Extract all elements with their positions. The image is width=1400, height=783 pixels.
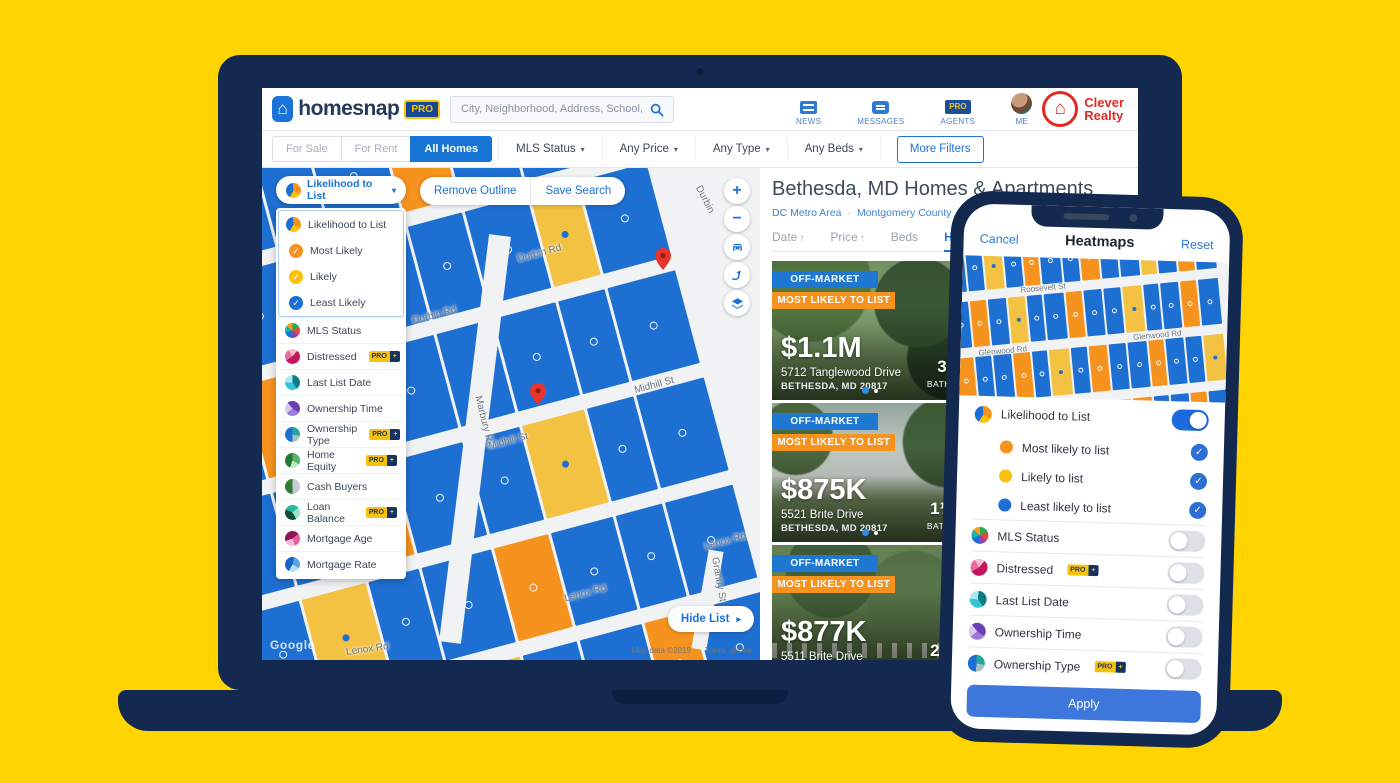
menu-option-label: Most Likely <box>310 245 363 257</box>
parcel-marker <box>1092 310 1097 315</box>
pro-badge-text: PRO <box>369 351 390 362</box>
nav-label: MESSAGES <box>857 117 904 126</box>
parcel-marker <box>996 319 1001 324</box>
parcel-marker <box>1097 366 1102 371</box>
parcel-marker <box>401 617 411 627</box>
toggle-knob <box>1170 532 1187 549</box>
menu-item-ownership-time[interactable]: Ownership Time <box>278 395 404 421</box>
parcel-marker <box>1048 258 1053 263</box>
segment-all-homes[interactable]: All Homes <box>410 136 492 162</box>
phone-map-parcel[interactable] <box>1013 352 1034 399</box>
news-icon <box>800 101 817 114</box>
setting-label: MLS Status <box>997 529 1059 545</box>
phone-map-parcel[interactable] <box>1078 255 1100 280</box>
parcel-marker <box>528 583 538 593</box>
dropdown-label: MLS Status <box>516 143 575 155</box>
phone-map-parcel[interactable] <box>1002 255 1023 288</box>
parcel-marker <box>435 493 445 503</box>
checked-icon[interactable]: ✓ <box>1189 502 1206 519</box>
parcel-marker <box>532 352 542 362</box>
ownership-type-toggle[interactable] <box>1164 658 1202 680</box>
phone-page-title: Heatmaps <box>1065 233 1135 251</box>
dropdown-any-price[interactable]: Any Price▾ <box>603 137 696 161</box>
parcel-marker <box>406 386 416 396</box>
parcel-marker <box>649 321 659 331</box>
parcel-marker <box>1213 355 1217 359</box>
nav-messages[interactable]: MESSAGES <box>857 101 904 126</box>
parcel-marker <box>1136 362 1141 367</box>
phone-map-parcel[interactable] <box>1148 339 1167 386</box>
search-icon[interactable] <box>649 102 665 118</box>
map-toolbar: Remove Outline Save Search <box>420 177 625 205</box>
photo-pagination <box>862 387 878 394</box>
parcel-marker <box>1207 299 1212 304</box>
photo-pagination <box>862 529 878 536</box>
spacer <box>1135 668 1156 669</box>
chevron-down-icon: ▾ <box>392 186 396 195</box>
likelihood-pie-icon <box>975 405 992 422</box>
pro-badge-plus: + <box>1115 662 1125 673</box>
parcel-marker <box>1078 367 1083 372</box>
spacer <box>1092 478 1181 480</box>
spacer <box>1068 538 1159 541</box>
nav-label: NEWS <box>796 117 821 126</box>
ownership-time-pie-icon <box>285 401 300 416</box>
pro-plus-badge: PRO+ <box>366 507 397 518</box>
least-likely-to-list-dot-icon <box>998 498 1011 511</box>
spacer <box>1078 602 1158 604</box>
mls-status-pie-icon <box>285 323 300 338</box>
cash-buyers-pie-icon <box>285 479 300 494</box>
phone-map-parcel[interactable] <box>970 300 990 347</box>
spacer <box>1107 571 1158 572</box>
menu-item-label: Cash Buyers <box>307 481 367 493</box>
home-equity-pie-icon <box>285 453 300 468</box>
more-filters-button[interactable]: More Filters <box>897 136 984 163</box>
mls-status-toggle[interactable] <box>1168 530 1206 552</box>
menu-item-ownership-type[interactable]: Ownership TypePRO+ <box>278 421 404 447</box>
phone-map-parcel[interactable] <box>1038 255 1062 284</box>
most-likely-banner: MOST LIKELY TO LIST <box>772 576 895 593</box>
ownership-type-pie-icon <box>285 427 300 442</box>
menu-item-label: Ownership Type <box>307 423 357 447</box>
phone-notch <box>1031 205 1164 230</box>
parcel-marker <box>1155 360 1160 365</box>
pagination-dot-active[interactable] <box>862 529 869 536</box>
homesnap-house-icon: ⌂ <box>272 96 293 122</box>
pro-badge-plus: + <box>390 429 400 440</box>
zoom-out-icon[interactable]: − <box>724 206 750 232</box>
cancel-button[interactable]: Cancel <box>980 232 1019 247</box>
phone-map-parcel[interactable] <box>1103 287 1124 334</box>
phone-speaker <box>1063 213 1109 220</box>
parcel-marker <box>1010 261 1015 266</box>
parcel-marker <box>677 428 687 438</box>
parcel-marker <box>1187 301 1192 306</box>
map[interactable]: Durbin RdDurbin RdDurbinMarbury RdMidhil… <box>262 168 760 660</box>
phone-map-parcel[interactable] <box>1165 337 1187 384</box>
phone-map-parcel[interactable] <box>1044 293 1068 341</box>
listing-card[interactable]: OFF-MARKETMOST LIKELY TO LIST$875K5521 B… <box>772 403 968 542</box>
parcel-marker <box>618 444 628 454</box>
pro-badge-plus: + <box>387 455 397 466</box>
parcel-marker <box>983 377 988 382</box>
check-icon: ✓ <box>289 270 303 284</box>
pro-plus-badge: PRO+ <box>366 455 397 466</box>
parcel-marker <box>675 658 685 660</box>
setting-option-label: Least likely to list <box>1020 498 1111 515</box>
segment-for-sale[interactable]: For Sale <box>272 136 342 162</box>
toggle-knob <box>1167 660 1184 677</box>
parcel-marker <box>1001 375 1006 380</box>
mortgage-rate-pie-icon <box>285 557 300 572</box>
sort-arrow-icon: ↑ <box>799 233 804 244</box>
setting-label: Distressed <box>996 561 1053 577</box>
phone-map-parcel[interactable] <box>1083 289 1105 336</box>
parcel-marker <box>1053 314 1058 319</box>
layers-icon[interactable] <box>724 290 750 316</box>
terms-of-use-link[interactable]: Terms of Use <box>705 646 752 655</box>
remove-outline-button[interactable]: Remove Outline <box>420 177 530 205</box>
parcel-marker <box>342 634 351 643</box>
pro-badge-plus: + <box>390 351 400 362</box>
laptop-base-notch <box>612 690 788 704</box>
pro-badge-text: PRO <box>366 455 387 466</box>
pro-badge-plus: + <box>1088 565 1098 576</box>
most-likely-to-list-dot-icon <box>1000 440 1013 453</box>
homesnap-pro-badge: PRO <box>404 100 440 119</box>
pro-badge-text: PRO <box>366 507 387 518</box>
most-likely-banner: MOST LIKELY TO LIST <box>772 434 895 451</box>
nav-agents[interactable]: PROAGENTS <box>941 100 976 126</box>
save-search-button[interactable]: Save Search <box>530 177 625 205</box>
listing-address: 5712 Tanglewood Drive <box>781 367 901 379</box>
likelihood-pie-icon <box>286 217 301 232</box>
listing-price: $875K <box>781 474 866 507</box>
phone-map-parcel[interactable] <box>1180 280 1200 327</box>
dropdown-mls-status[interactable]: MLS Status▾ <box>498 137 602 161</box>
map-data-label: Map data ©2019 <box>632 646 691 655</box>
ownership-time-pie-icon <box>969 623 986 640</box>
reset-button[interactable]: Reset <box>1181 237 1214 252</box>
nav-me[interactable]: ME <box>1011 93 1032 126</box>
setting-label: Ownership Time <box>995 625 1082 641</box>
chevron-down-icon: ▾ <box>674 145 678 154</box>
search-bar[interactable] <box>450 96 674 123</box>
distressed-pie-icon <box>285 349 300 364</box>
pagination-dot-active[interactable] <box>862 387 869 394</box>
parcel-marker <box>1193 357 1198 362</box>
phone-map-parcel[interactable] <box>1127 341 1150 389</box>
likelihood-pie-icon <box>286 183 301 198</box>
listing-price: $1.1M <box>781 332 862 365</box>
off-market-banner: OFF-MARKET <box>772 413 878 430</box>
parcel-marker <box>561 460 570 469</box>
app-header: ⌂ homesnap PRO NEWSMESSAGESPROAGENTSME ⌂… <box>262 88 1138 130</box>
map-pin[interactable] <box>655 248 671 270</box>
menu-item-mls-status[interactable]: MLS Status <box>278 317 404 343</box>
menu-item-home-equity[interactable]: Home EquityPRO+ <box>278 447 404 473</box>
setting-label: Ownership Type <box>994 657 1081 673</box>
google-watermark: Google <box>270 638 315 652</box>
parcel-marker <box>589 566 599 576</box>
menu-item-cash-buyers[interactable]: Cash Buyers <box>278 473 404 499</box>
menu-item-likelihood-to-list[interactable]: Likelihood to List <box>279 211 403 238</box>
laptop-camera-dot <box>697 68 704 75</box>
sort-arrow-icon: ↑ <box>860 233 865 244</box>
apply-button[interactable]: Apply <box>966 685 1201 724</box>
menu-item-loan-balance[interactable]: Loan BalancePRO+ <box>278 499 404 525</box>
menu-option-likely[interactable]: ✓Likely <box>279 264 403 290</box>
parcel-marker <box>972 265 977 270</box>
dropdown-any-type[interactable]: Any Type▾ <box>696 137 788 161</box>
parcel-marker <box>1073 312 1078 317</box>
selected-heatmap-group: Likelihood to List ✓Most Likely✓Likely✓L… <box>278 210 404 317</box>
menu-option-least-likely[interactable]: ✓Least Likely <box>279 290 403 316</box>
phone-map-parcel[interactable] <box>965 255 985 291</box>
menu-option-most-likely[interactable]: ✓Most Likely <box>279 238 403 264</box>
mls-status-pie-icon <box>971 527 988 544</box>
parcel-marker <box>1168 303 1173 308</box>
phone-map-parcel[interactable] <box>1060 255 1080 282</box>
last-list-date-toggle[interactable] <box>1166 594 1204 616</box>
phone-map-parcel[interactable] <box>1065 291 1085 338</box>
parcel-marker <box>500 476 510 486</box>
nav-news[interactable]: NEWS <box>796 101 821 126</box>
pro-plus-badge: PRO+ <box>1067 564 1099 576</box>
parcel-marker <box>442 261 452 271</box>
menu-option-label: Least Likely <box>310 297 365 309</box>
phone-map-parcel[interactable] <box>1208 389 1229 402</box>
map-controls: +− <box>724 178 750 316</box>
listing-address: 5521 Brite Drive <box>781 509 863 521</box>
listing-card[interactable]: OFF-MARKETMOST LIKELY TO LIST$1.1M5712 T… <box>772 261 968 400</box>
phone-map-parcel[interactable] <box>1032 350 1051 397</box>
parcel-marker <box>1116 364 1121 369</box>
listing-type-segments: For SaleFor RentAll Homes <box>272 136 492 162</box>
filter-bar: For SaleFor RentAll Homes MLS Status▾Any… <box>262 130 1138 168</box>
toggle-knob <box>1168 596 1185 613</box>
homesnap-wordmark: homesnap <box>298 97 399 121</box>
heatmap-menu-panel: Likelihood to List ✓Most Likely✓Likely✓L… <box>276 208 406 579</box>
parcel-marker <box>1111 308 1116 313</box>
tab-beds[interactable]: Beds <box>891 230 918 244</box>
breadcrumb-link[interactable]: Montgomery County <box>857 207 952 219</box>
distressed-toggle[interactable] <box>1167 562 1205 584</box>
phone-map-parcel[interactable] <box>1049 348 1073 396</box>
last-list-date-pie-icon <box>969 591 986 608</box>
commute-icon[interactable] <box>724 234 750 260</box>
dropdown-any-beds[interactable]: Any Beds▾ <box>788 137 881 161</box>
setting-ownership-type: Ownership TypePRO+ <box>967 647 1202 686</box>
segment-for-rent[interactable]: For Rent <box>341 136 412 162</box>
draw-icon[interactable] <box>724 262 750 288</box>
likelihood-toggle[interactable] <box>1171 409 1209 431</box>
check-icon: ✓ <box>289 244 303 258</box>
toggle-knob <box>1189 411 1206 428</box>
chevron-down-icon: ▾ <box>581 145 585 154</box>
map-attribution: Map data ©2019 Terms of Use <box>632 646 752 655</box>
pro-badge-plus: + <box>387 507 397 518</box>
toggle-knob <box>1169 564 1186 581</box>
menu-item-label: Mortgage Rate <box>307 559 376 571</box>
parcel-marker <box>1016 318 1020 322</box>
parcel-marker <box>959 323 963 328</box>
setting-option-label: Most likely to list <box>1022 440 1110 456</box>
zoom-in-icon[interactable]: + <box>724 178 750 204</box>
parcel-marker <box>1150 304 1155 309</box>
off-market-banner: OFF-MARKET <box>772 271 878 288</box>
spacer <box>1090 634 1156 636</box>
tab-date[interactable]: Date↑ <box>772 230 804 244</box>
parcel-marker <box>991 264 995 268</box>
menu-item-label: Loan Balance <box>307 501 354 525</box>
most-likely-banner: MOST LIKELY TO LIST <box>772 292 895 309</box>
spacer <box>1120 508 1180 510</box>
parcel-marker <box>1021 373 1026 378</box>
phone-map-parcel[interactable] <box>1198 278 1222 326</box>
phone-camera <box>1129 214 1137 222</box>
pro-badge-text: PRO <box>1094 661 1115 673</box>
pro-plus-badge: PRO+ <box>1094 661 1126 673</box>
phone-map-parcel[interactable] <box>993 354 1015 401</box>
distressed-pie-icon <box>970 559 987 576</box>
parcel-marker <box>1034 315 1039 320</box>
setting-label: Last List Date <box>995 593 1069 609</box>
pro-agents-icon: PRO <box>945 100 971 114</box>
phone-map-parcel[interactable] <box>975 356 995 403</box>
pro-plus-badge: PRO+ <box>369 351 400 362</box>
dropdown-label: Any Beds <box>805 143 854 155</box>
pro-badge-text: PRO <box>1067 564 1088 576</box>
brokerage-logo: ⌂ Clever Realty <box>1042 91 1124 127</box>
hide-list-button[interactable]: Hide List ▸ <box>668 606 754 632</box>
phone-map-parcel[interactable] <box>1122 285 1145 333</box>
parcel-marker <box>1132 307 1136 311</box>
listing-price: $877K <box>781 616 866 649</box>
parcel-marker <box>977 321 982 326</box>
tab-price[interactable]: Price↑ <box>830 230 864 244</box>
homesnap-logo[interactable]: ⌂ homesnap PRO <box>272 96 440 122</box>
phone-map-parcel[interactable] <box>1160 282 1182 329</box>
check-icon: ✓ <box>289 296 303 310</box>
phone-map-parcel[interactable] <box>1027 295 1046 342</box>
phone-map-parcel[interactable] <box>1185 336 1205 383</box>
menu-item-label: Ownership Time <box>307 403 383 415</box>
pro-badge-text: PRO <box>369 429 390 440</box>
dropdown-label: Any Type <box>713 143 761 155</box>
toggle-knob <box>1167 628 1184 645</box>
pro-plus-badge: PRO+ <box>369 429 400 440</box>
setting-option-label: Likely to list <box>1021 469 1083 485</box>
menu-item-label: Distressed <box>307 351 357 363</box>
header-nav: NEWSMESSAGESPROAGENTSME <box>796 93 1032 126</box>
clever-realty-house-icon: ⌂ <box>1042 91 1078 127</box>
parcel-marker <box>1028 260 1033 265</box>
menu-item-mortgage-rate[interactable]: Mortgage Rate <box>278 551 404 577</box>
menu-item-distressed[interactable]: DistressedPRO+ <box>278 343 404 369</box>
chevron-down-icon: ▾ <box>766 145 770 154</box>
parcel-marker <box>1174 358 1179 363</box>
phone-map-parcel[interactable] <box>1203 334 1227 382</box>
menu-item-label: Last List Date <box>307 377 371 389</box>
menu-item-last-list-date[interactable]: Last List Date <box>278 369 404 395</box>
phone-map-parcel[interactable] <box>1098 255 1119 279</box>
phone-map-parcel[interactable] <box>1021 255 1040 286</box>
spacer <box>1118 450 1182 452</box>
phone-map-parcel[interactable] <box>983 255 1005 289</box>
parcel-marker <box>589 337 599 347</box>
menu-item-mortgage-age[interactable]: Mortgage Age <box>278 525 404 551</box>
off-market-banner: OFF-MARKET <box>772 555 878 572</box>
listing-address: 5511 Brite Drive <box>781 651 863 660</box>
parcel-marker <box>262 311 265 321</box>
breadcrumb-link[interactable]: DC Metro Area <box>772 207 841 219</box>
ownership-time-toggle[interactable] <box>1165 626 1203 648</box>
pagination-dot[interactable] <box>874 531 878 535</box>
phone-map-parcel[interactable] <box>1143 284 1162 331</box>
heatmap-menu-button[interactable]: Likelihood to List ▾ <box>276 176 406 204</box>
menu-option-label: Likely <box>310 271 337 283</box>
heatmap-menu: Likelihood to List ▾ Likelihood to List … <box>276 176 406 579</box>
menu-item-label: Home Equity <box>307 449 354 473</box>
nav-label: AGENTS <box>941 117 976 126</box>
dropdown-label: Any Price <box>620 143 669 155</box>
phone-map-parcel[interactable] <box>1089 345 1111 392</box>
search-input[interactable] <box>451 103 673 115</box>
phone-map-parcel[interactable] <box>988 298 1010 345</box>
parcel-marker <box>1039 371 1044 376</box>
parcel-marker <box>963 378 968 383</box>
marketing-canvas: ⌂ homesnap PRO NEWSMESSAGESPROAGENTSME ⌂… <box>0 0 1400 783</box>
phone-map-parcel[interactable] <box>1109 343 1130 390</box>
parcel-marker <box>646 551 656 561</box>
loan-balance-pie-icon <box>285 505 300 520</box>
phone-map[interactable]: Roosevelt StGlenwood RdGlenwood Rd <box>959 255 1229 402</box>
menu-item-label: MLS Status <box>307 325 361 337</box>
phone-map-parcel[interactable] <box>1008 296 1029 343</box>
phone-heatmap-settings: Likelihood to List Most likely to list✓L… <box>951 395 1225 685</box>
phone-app-screen: Cancel Heatmaps Reset Roosevelt StGlenwo… <box>950 203 1231 735</box>
phone-map-parcel-grid <box>959 255 1229 402</box>
likely-to-list-dot-icon <box>999 469 1012 482</box>
parcel-marker <box>1059 370 1063 374</box>
phone-map-parcel[interactable] <box>1071 347 1091 394</box>
filter-dropdowns: MLS Status▾Any Price▾Any Type▾Any Beds▾ <box>498 137 881 161</box>
checked-icon[interactable]: ✓ <box>1191 444 1208 461</box>
messages-icon <box>872 101 889 114</box>
avatar <box>1011 93 1032 114</box>
phone-map-parcel[interactable] <box>1171 393 1193 402</box>
parcel-marker <box>561 230 570 239</box>
parcel-marker <box>620 214 630 224</box>
phone-mockup: Cancel Heatmaps Reset Roosevelt StGlenwo… <box>937 190 1244 749</box>
chevron-right-icon: ▸ <box>736 614 741 625</box>
checked-icon[interactable]: ✓ <box>1190 473 1207 490</box>
pagination-dot[interactable] <box>874 389 878 393</box>
mortgage-age-pie-icon <box>285 531 300 546</box>
brokerage-name: Clever Realty <box>1084 96 1124 122</box>
ownership-type-pie-icon <box>968 655 985 672</box>
map-pin[interactable] <box>530 383 546 405</box>
breadcrumb-separator: · <box>847 207 851 219</box>
nav-label: ME <box>1015 117 1028 126</box>
chevron-down-icon: ▾ <box>859 145 863 154</box>
last-list-date-pie-icon <box>285 375 300 390</box>
menu-item-label: Mortgage Age <box>307 533 372 545</box>
